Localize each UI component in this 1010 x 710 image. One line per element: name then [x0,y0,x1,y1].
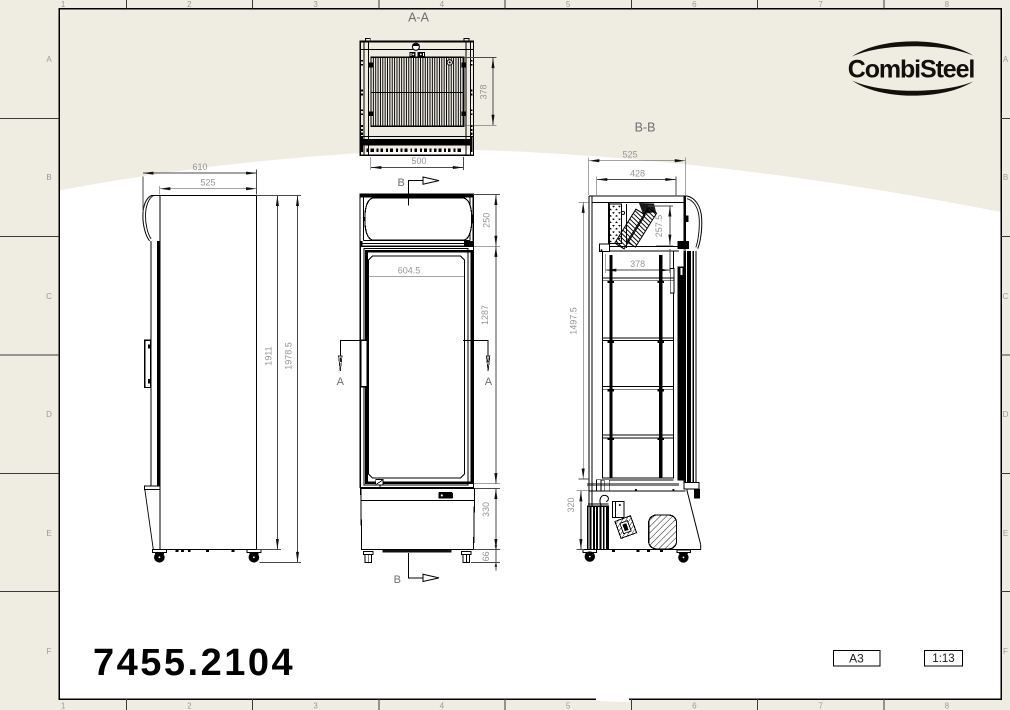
svg-text:E: E [46,529,51,538]
svg-text:1287: 1287 [480,305,490,325]
svg-text:378: 378 [479,84,489,99]
svg-text:8: 8 [945,702,950,710]
svg-text:66: 66 [481,551,491,561]
svg-text:8: 8 [945,0,950,9]
svg-text:A: A [1003,55,1009,64]
svg-text:B: B [394,574,401,586]
svg-text:A: A [46,55,52,64]
svg-text:CombiSteel: CombiSteel [848,56,975,84]
svg-text:1978.5: 1978.5 [284,342,294,370]
svg-text:1497.5: 1497.5 [569,307,579,335]
svg-text:D: D [1003,410,1009,419]
svg-text:604.5: 604.5 [398,266,421,276]
svg-text:B: B [46,173,51,182]
svg-text:4: 4 [440,0,445,9]
svg-text:4: 4 [440,702,445,710]
svg-text:5: 5 [566,0,571,9]
svg-text:F: F [1003,647,1008,656]
svg-text:500: 500 [411,156,426,166]
svg-text:F: F [47,647,52,656]
svg-text:525: 525 [622,150,637,160]
svg-text:C: C [46,292,52,301]
svg-text:3: 3 [313,0,318,9]
svg-text:A: A [485,376,493,388]
svg-text:1:13: 1:13 [932,653,954,665]
svg-text:378: 378 [630,259,645,269]
svg-text:A-A: A-A [408,11,430,25]
svg-text:A: A [337,376,345,388]
svg-text:2: 2 [187,702,192,710]
svg-text:250: 250 [482,213,492,228]
svg-text:1: 1 [61,0,66,9]
svg-text:428: 428 [630,168,645,178]
svg-text:257.5: 257.5 [654,215,664,238]
svg-text:6: 6 [692,702,697,710]
svg-text:7: 7 [818,702,823,710]
svg-text:C: C [1003,292,1009,301]
svg-text:7: 7 [818,0,823,9]
svg-text:5: 5 [566,702,571,710]
svg-text:6: 6 [692,0,697,9]
svg-text:2: 2 [187,0,192,9]
svg-text:320: 320 [566,497,576,512]
svg-text:1911: 1911 [263,346,273,365]
svg-text:525: 525 [200,178,215,188]
svg-text:B: B [398,177,405,189]
svg-text:B: B [1003,173,1008,182]
svg-text:3: 3 [313,702,318,710]
svg-text:330: 330 [481,502,491,517]
svg-text:E: E [1003,529,1008,538]
svg-text:B-B: B-B [635,121,656,135]
svg-text:D: D [46,410,52,419]
svg-text:610: 610 [192,162,207,172]
svg-text:1: 1 [61,702,66,710]
svg-text:A3: A3 [849,652,864,666]
svg-text:7455.2104: 7455.2104 [93,642,295,684]
